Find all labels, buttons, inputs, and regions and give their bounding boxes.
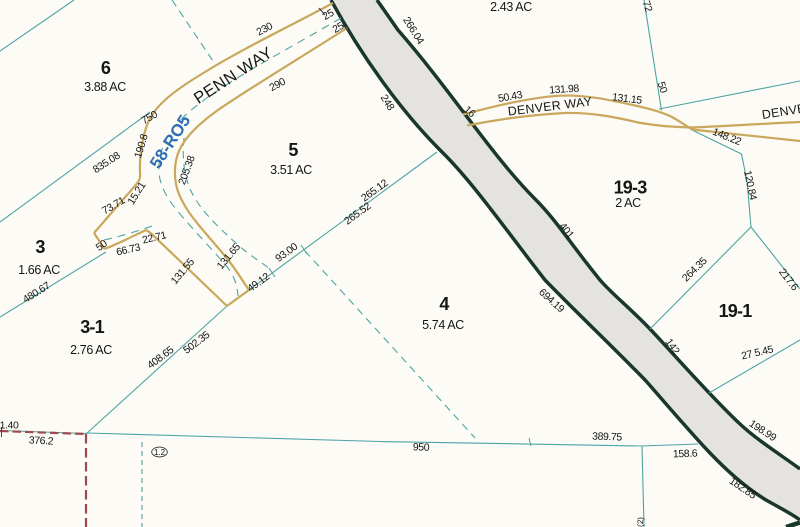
svg-text:6: 6 — [101, 58, 111, 78]
svg-text:3.88 AC: 3.88 AC — [84, 80, 126, 94]
svg-text:(2): (2) — [636, 517, 645, 527]
svg-text:3.51 AC: 3.51 AC — [270, 163, 312, 177]
svg-text:4: 4 — [439, 294, 449, 314]
svg-text:1.40: 1.40 — [0, 420, 19, 432]
svg-text:3: 3 — [35, 237, 45, 257]
svg-text:1.2: 1.2 — [154, 448, 166, 457]
svg-text:5: 5 — [288, 140, 298, 160]
svg-text:389.75: 389.75 — [592, 430, 623, 443]
svg-text:19-3: 19-3 — [614, 178, 648, 198]
svg-text:376.2: 376.2 — [29, 434, 54, 447]
svg-text:5.74 AC: 5.74 AC — [422, 318, 464, 332]
svg-text:131.98: 131.98 — [549, 82, 580, 96]
svg-text:3-1: 3-1 — [80, 317, 104, 337]
svg-text:1.66 AC: 1.66 AC — [18, 263, 60, 277]
svg-text:950: 950 — [413, 441, 430, 454]
svg-text:19-1: 19-1 — [719, 301, 753, 321]
svg-text:2.43 AC: 2.43 AC — [490, 0, 532, 14]
svg-text:158.6: 158.6 — [673, 448, 698, 461]
svg-text:2.76 AC: 2.76 AC — [70, 343, 112, 357]
svg-text:2 AC: 2 AC — [615, 196, 641, 210]
